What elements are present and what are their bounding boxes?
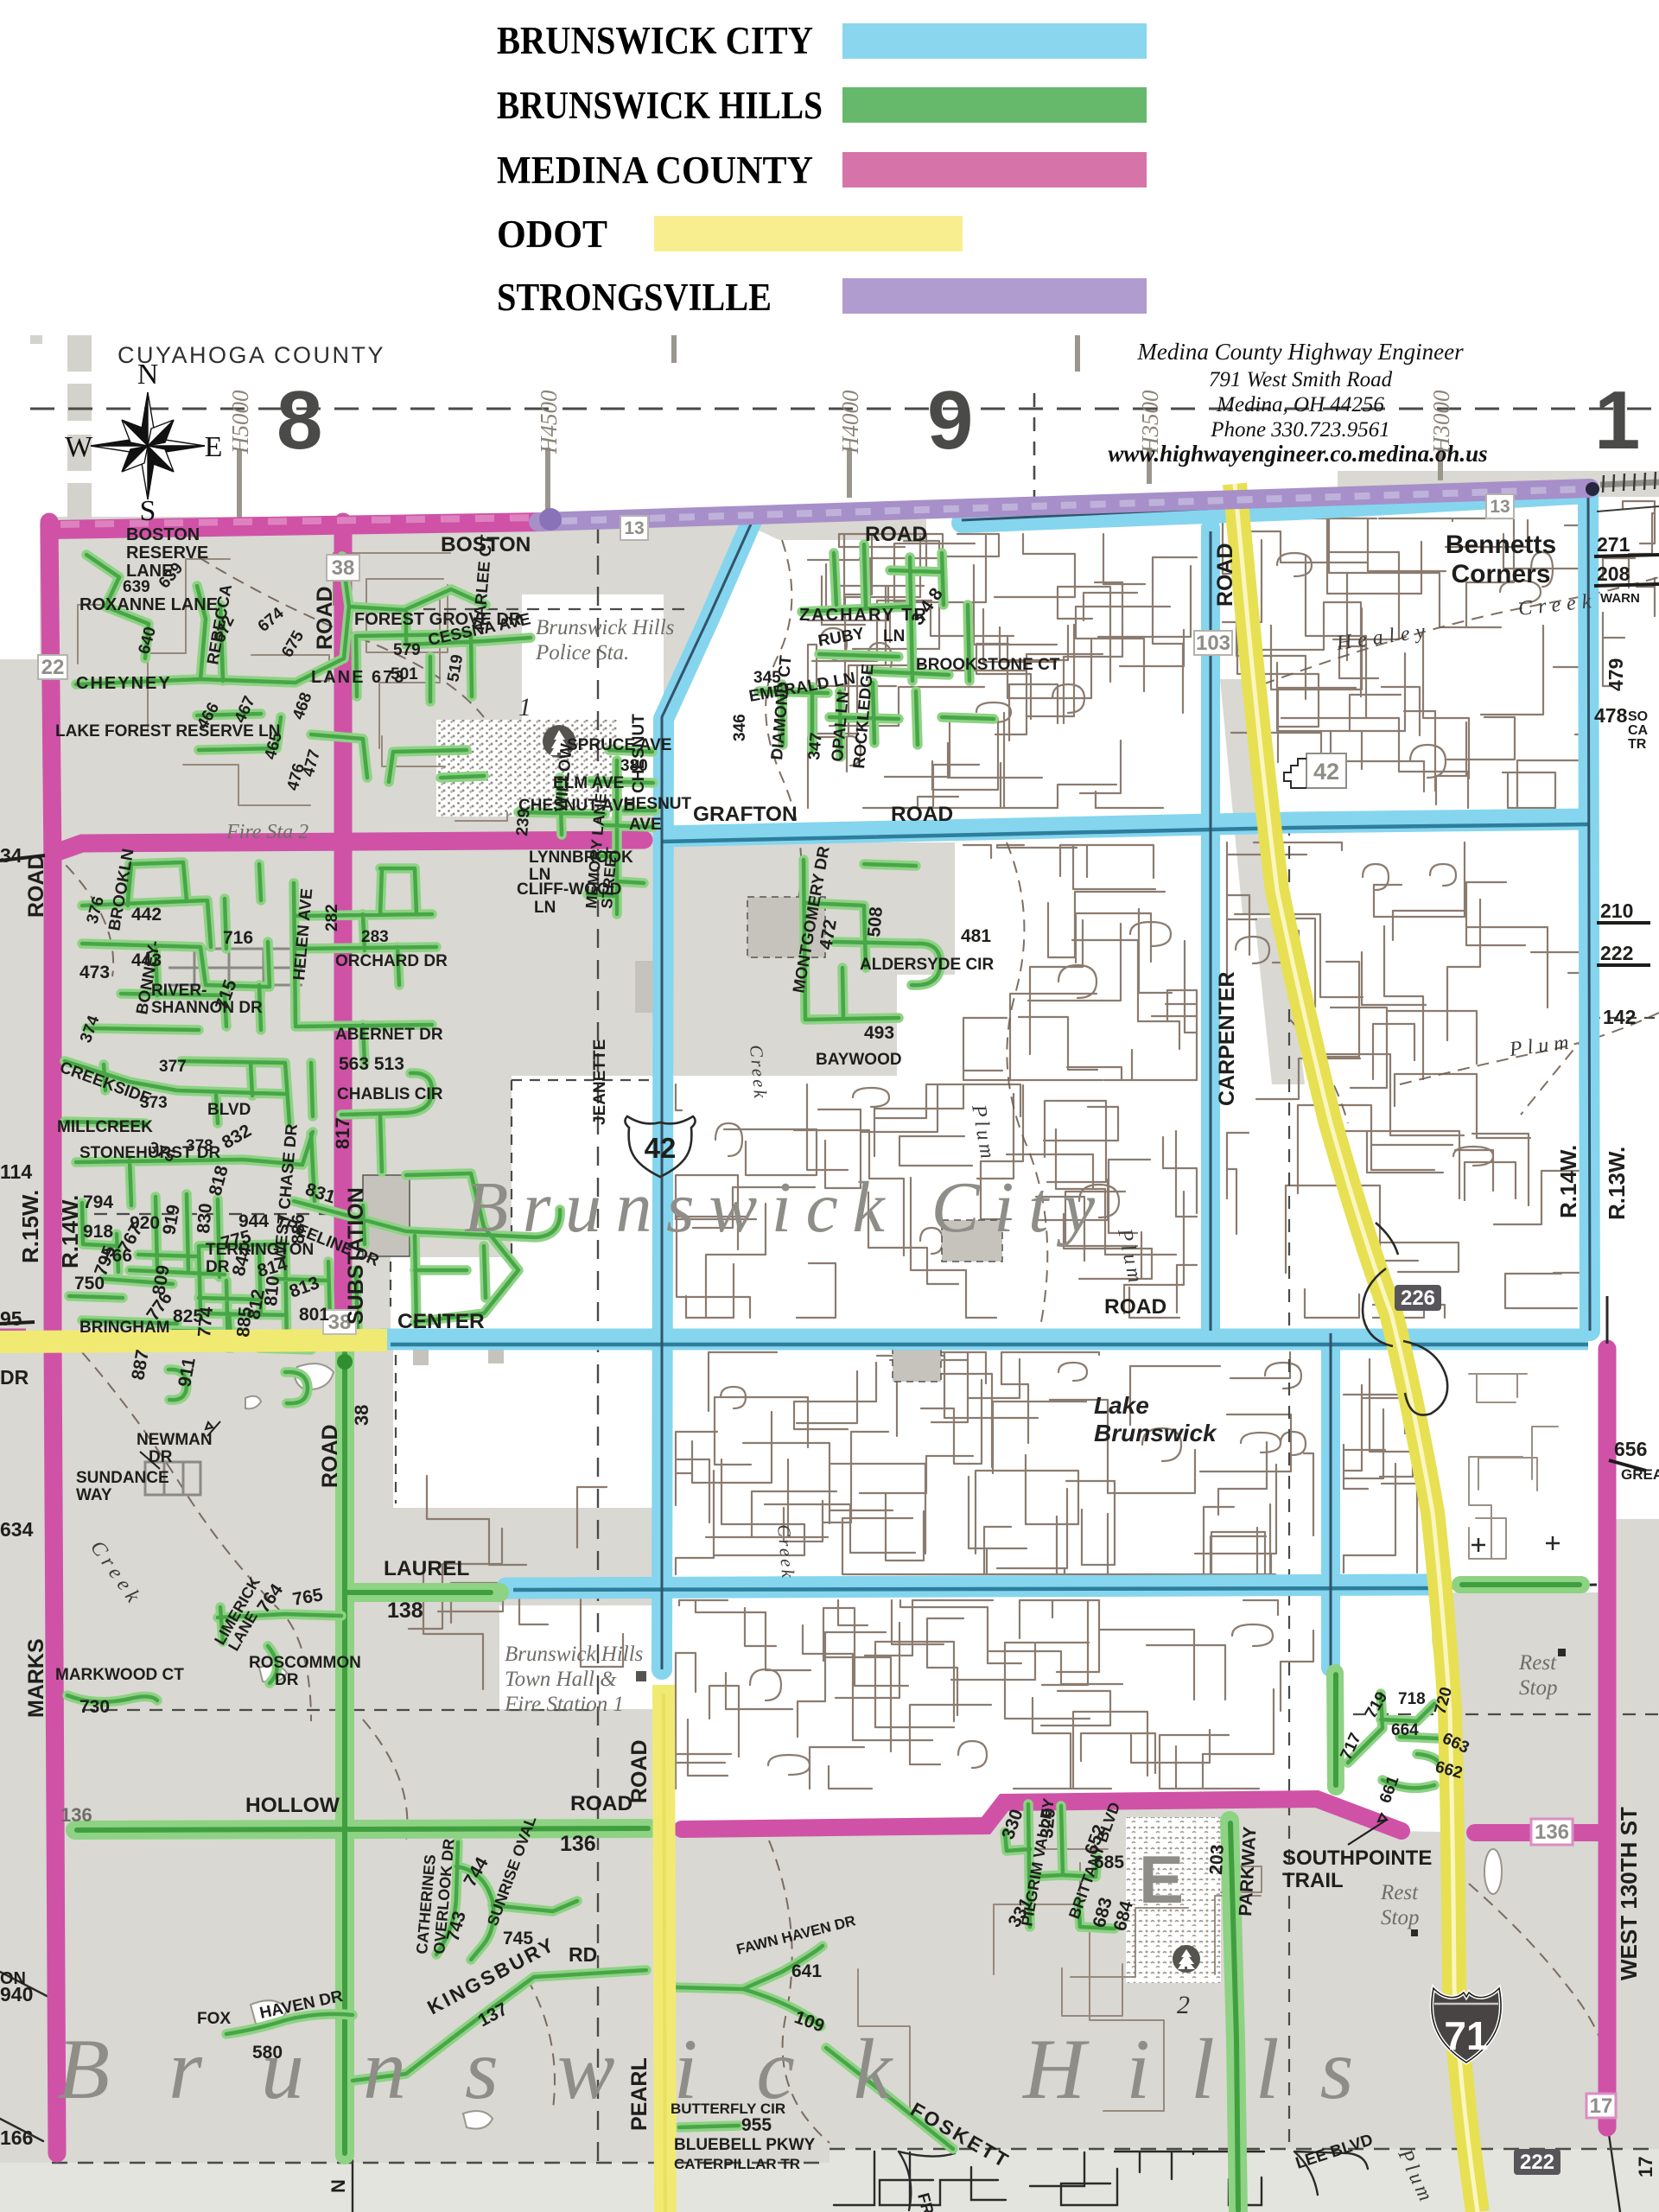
svg-text:442: 442 [131, 905, 162, 925]
svg-text:918: 918 [83, 1222, 113, 1242]
svg-text:239: 239 [513, 808, 534, 836]
svg-text:136: 136 [560, 1832, 596, 1856]
svg-text:1: 1 [518, 693, 531, 721]
svg-text:JEANETTE: JEANETTE [591, 1039, 609, 1125]
svg-text:ROAD: ROAD [865, 523, 927, 546]
svg-text:R.14W.: R.14W. [57, 1195, 83, 1268]
svg-text:W: W [65, 431, 93, 463]
svg-text:Fire Sta 2: Fire Sta 2 [226, 821, 308, 843]
svg-text:RIVER-: RIVER- [151, 982, 207, 1000]
svg-text:226: 226 [1401, 1287, 1435, 1310]
svg-text:R.15W.: R.15W. [17, 1190, 43, 1263]
svg-text:282: 282 [323, 904, 341, 931]
svg-text:373: 373 [140, 1094, 168, 1112]
svg-text:473: 473 [79, 963, 110, 982]
svg-text:CHEYNEY: CHEYNEY [76, 674, 172, 693]
svg-text:801: 801 [299, 1305, 329, 1325]
svg-text:H4000: H4000 [837, 390, 863, 454]
svg-text:ROAD: ROAD [1213, 543, 1237, 607]
svg-text:BLUEBELL PKWY: BLUEBELL PKWY [674, 2136, 816, 2154]
svg-text:210: 210 [1600, 899, 1633, 922]
svg-text:R.14W.: R.14W. [1555, 1145, 1581, 1218]
svg-text:634: 634 [0, 1518, 34, 1541]
svg-text:LN: LN [534, 899, 556, 917]
svg-text:WEST 130TH ST: WEST 130TH ST [1616, 1807, 1642, 1980]
svg-text:BROOKSTONE CT: BROOKSTONE CT [916, 656, 1060, 674]
svg-text:1: 1 [1594, 374, 1640, 467]
svg-text:SO: SO [1628, 709, 1648, 724]
svg-text:478: 478 [1594, 704, 1628, 727]
svg-text:222: 222 [1520, 2151, 1554, 2174]
svg-text:STONEHURST DR: STONEHURST DR [79, 1144, 221, 1162]
svg-text:ROAD: ROAD [24, 854, 48, 918]
svg-text:WARN: WARN [1600, 591, 1640, 606]
svg-text:SUNDANCE: SUNDANCE [76, 1469, 169, 1487]
svg-text:138: 138 [387, 1599, 423, 1623]
svg-text:Police Sta.: Police Sta. [535, 641, 629, 664]
svg-text:MILLCREEK: MILLCREEK [57, 1118, 153, 1136]
svg-text:508: 508 [864, 906, 887, 938]
svg-text:347: 347 [805, 732, 826, 760]
svg-text:E: E [205, 431, 223, 463]
svg-text:NEWMAN: NEWMAN [137, 1431, 213, 1449]
svg-text:DR: DR [149, 1448, 173, 1466]
svg-text:Brunswick: Brunswick [57, 2021, 950, 2117]
svg-text:SOUTHPOINTE: SOUTHPOINTE [1282, 1847, 1432, 1870]
svg-text:42: 42 [645, 1132, 677, 1164]
svg-text:Fire Station 1: Fire Station 1 [504, 1693, 624, 1716]
svg-text:MARKWOOD CT: MARKWOOD CT [55, 1666, 184, 1684]
svg-text:479: 479 [1605, 658, 1627, 691]
svg-text:283: 283 [361, 928, 389, 946]
svg-text:Corners: Corners [1451, 560, 1550, 588]
svg-text:DR: DR [206, 1258, 230, 1276]
svg-text:ALDERSYDE CIR: ALDERSYDE CIR [860, 956, 994, 974]
svg-text:656: 656 [1614, 1438, 1647, 1460]
svg-text:CHESNUT AVE: CHESNUT AVE [518, 797, 634, 815]
svg-text:RD: RD [569, 1943, 597, 1966]
svg-text:9: 9 [927, 374, 973, 467]
svg-text:www.highwayengineer.co.medina.: www.highwayengineer.co.medina.oh.us [1108, 441, 1487, 467]
svg-text:34: 34 [0, 844, 22, 867]
svg-text:LN: LN [883, 627, 905, 645]
svg-text:271: 271 [1597, 533, 1630, 556]
svg-text:BLVD: BLVD [207, 1101, 251, 1119]
svg-text:Medina, OH 44256: Medina, OH 44256 [1216, 393, 1384, 416]
svg-text:579: 579 [393, 641, 421, 659]
svg-text:DR: DR [275, 1671, 299, 1689]
svg-text:142: 142 [1603, 1006, 1636, 1028]
svg-text:817: 817 [332, 1117, 353, 1149]
svg-text:830: 830 [194, 1203, 216, 1235]
svg-text:Brunswick: Brunswick [1094, 1420, 1217, 1446]
svg-text:N: N [327, 2179, 349, 2193]
svg-text:ROAD: ROAD [1104, 1295, 1166, 1319]
svg-text:Medina County Highway Engineer: Medina County Highway Engineer [1136, 339, 1464, 365]
svg-text:Lake: Lake [1094, 1392, 1149, 1419]
svg-text:H4500: H4500 [536, 390, 562, 454]
svg-text:103: 103 [1196, 632, 1230, 655]
svg-text:WAY: WAY [76, 1486, 112, 1504]
svg-text:Phone 330.723.9561: Phone 330.723.9561 [1210, 418, 1390, 442]
svg-text:750: 750 [74, 1274, 105, 1294]
svg-text:38: 38 [332, 556, 355, 580]
svg-text:346: 346 [731, 714, 749, 741]
svg-text:13: 13 [1490, 497, 1510, 517]
svg-text:ROAD: ROAD [570, 1792, 632, 1815]
svg-text:STRONGSVILLE: STRONGSVILLE [497, 276, 772, 319]
svg-text:GRAFTON: GRAFTON [693, 803, 798, 826]
svg-text:222: 222 [1600, 942, 1633, 964]
svg-text:CATERPILLAR TR: CATERPILLAR TR [674, 2156, 800, 2172]
svg-text:S: S [140, 495, 156, 527]
svg-text:493: 493 [864, 1023, 894, 1043]
svg-text:136: 136 [60, 1804, 92, 1826]
svg-text:580: 580 [252, 2043, 283, 2063]
svg-text:8: 8 [276, 374, 322, 467]
svg-text:CARPENTER: CARPENTER [1215, 971, 1239, 1106]
svg-text:Town Hall &: Town Hall & [505, 1668, 617, 1691]
svg-text:HOLLOW: HOLLOW [245, 1794, 340, 1817]
svg-text:17: 17 [1635, 2157, 1656, 2177]
svg-text:664: 664 [1391, 1721, 1419, 1739]
svg-text:Stop: Stop [1381, 1906, 1419, 1929]
svg-text:ROAD: ROAD [891, 803, 953, 826]
svg-text:38: 38 [351, 1405, 372, 1426]
svg-text:TERRINGTON: TERRINGTON [206, 1241, 314, 1259]
svg-text:203: 203 [1206, 1844, 1228, 1875]
svg-text:774: 774 [194, 1306, 217, 1338]
svg-text:22: 22 [41, 656, 65, 679]
svg-text:Bennetts: Bennetts [1446, 531, 1556, 559]
svg-text:Brunswick City: Brunswick City [464, 1167, 1109, 1248]
svg-text:563 513: 563 513 [339, 1054, 404, 1074]
svg-text:501: 501 [391, 665, 418, 683]
svg-text:794: 794 [83, 1192, 113, 1212]
svg-text:716: 716 [223, 928, 253, 948]
svg-text:940: 940 [0, 1983, 33, 2005]
svg-text:ROAD: ROAD [318, 1424, 342, 1488]
svg-text:ROAD: ROAD [313, 586, 337, 650]
svg-text:TR: TR [1628, 737, 1647, 752]
svg-text:MARKS: MARKS [24, 1638, 48, 1718]
svg-text:114: 114 [0, 1160, 32, 1183]
svg-text:2: 2 [1177, 1991, 1190, 2019]
svg-text:136: 136 [1535, 1821, 1569, 1844]
svg-text:Brunswick Hills: Brunswick Hills [536, 616, 674, 639]
svg-text:E: E [1139, 1841, 1184, 1917]
svg-text:H5000: H5000 [227, 390, 253, 454]
svg-text:AVE: AVE [629, 816, 662, 834]
svg-text:BRUNSWICK HILLS: BRUNSWICK HILLS [497, 84, 823, 127]
svg-text:ROSCOMMON: ROSCOMMON [249, 1654, 361, 1672]
svg-text:208: 208 [1597, 563, 1630, 585]
svg-text:166: 166 [0, 2126, 33, 2149]
svg-text:TRAIL: TRAIL [1282, 1869, 1344, 1892]
svg-text:CENTER: CENTER [397, 1310, 485, 1333]
svg-text:BOSTON: BOSTON [126, 525, 200, 544]
svg-text:RESERVE: RESERVE [126, 543, 208, 563]
svg-text:377: 377 [159, 1058, 187, 1076]
svg-text:641: 641 [791, 1961, 822, 1981]
svg-text:944: 944 [238, 1211, 269, 1231]
svg-text:BRUNSWICK CITY: BRUNSWICK CITY [497, 19, 813, 62]
svg-text:CHESNUT: CHESNUT [630, 714, 648, 793]
svg-text:HESNUT: HESNUT [624, 795, 692, 813]
svg-text:BAYWOOD: BAYWOOD [816, 1051, 902, 1069]
svg-text:SHANNON DR: SHANNON DR [151, 999, 263, 1017]
svg-text:FOREST GROVE DR: FOREST GROVE DR [354, 610, 522, 629]
svg-text:ROAD: ROAD [627, 1739, 652, 1803]
svg-text:Rest: Rest [1380, 1881, 1419, 1904]
svg-text:R.13W.: R.13W. [1604, 1147, 1630, 1220]
svg-text:95: 95 [0, 1307, 22, 1330]
svg-text:MEDINA COUNTY: MEDINA COUNTY [497, 149, 813, 192]
svg-text:13: 13 [624, 518, 644, 538]
svg-text:685: 685 [1094, 1853, 1124, 1872]
svg-text:ORCHARD DR: ORCHARD DR [335, 952, 448, 970]
svg-text:791 West Smith Road: 791 West Smith Road [1209, 368, 1393, 391]
svg-text:886: 886 [289, 1214, 308, 1244]
svg-text:DR: DR [0, 1366, 29, 1389]
svg-text:Hills: Hills [1021, 2021, 1394, 2117]
svg-text:71: 71 [1444, 2013, 1488, 2058]
svg-text:CHABLIS CIR: CHABLIS CIR [337, 1085, 443, 1103]
svg-text:329: 329 [1037, 1808, 1059, 1840]
svg-text:481: 481 [961, 926, 991, 946]
svg-text:42: 42 [1313, 759, 1339, 785]
svg-text:810: 810 [261, 1275, 283, 1307]
svg-text:730: 730 [79, 1697, 110, 1717]
svg-text:639: 639 [123, 578, 150, 596]
svg-text:Brunswick Hills: Brunswick Hills [505, 1643, 643, 1666]
svg-text:17: 17 [1590, 2094, 1613, 2118]
svg-text:CUYAHOGA COUNTY: CUYAHOGA COUNTY [118, 342, 385, 368]
svg-text:CA: CA [1628, 723, 1649, 738]
svg-text:718: 718 [1398, 1690, 1426, 1708]
svg-text:ABERNET DR: ABERNET DR [335, 1026, 443, 1044]
svg-text:LAUREL: LAUREL [384, 1557, 469, 1580]
svg-text:955: 955 [741, 2115, 772, 2135]
svg-text:PEARL: PEARL [627, 2057, 652, 2131]
svg-text:FOX: FOX [197, 2010, 231, 2028]
svg-text:Stop: Stop [1519, 1676, 1557, 1700]
svg-text:ODOT: ODOT [497, 213, 607, 256]
svg-text:SPRUCE AVE: SPRUCE AVE [567, 736, 671, 754]
svg-text:Rest: Rest [1518, 1651, 1557, 1675]
svg-text:ROXANNE LANE: ROXANNE LANE [79, 595, 218, 614]
